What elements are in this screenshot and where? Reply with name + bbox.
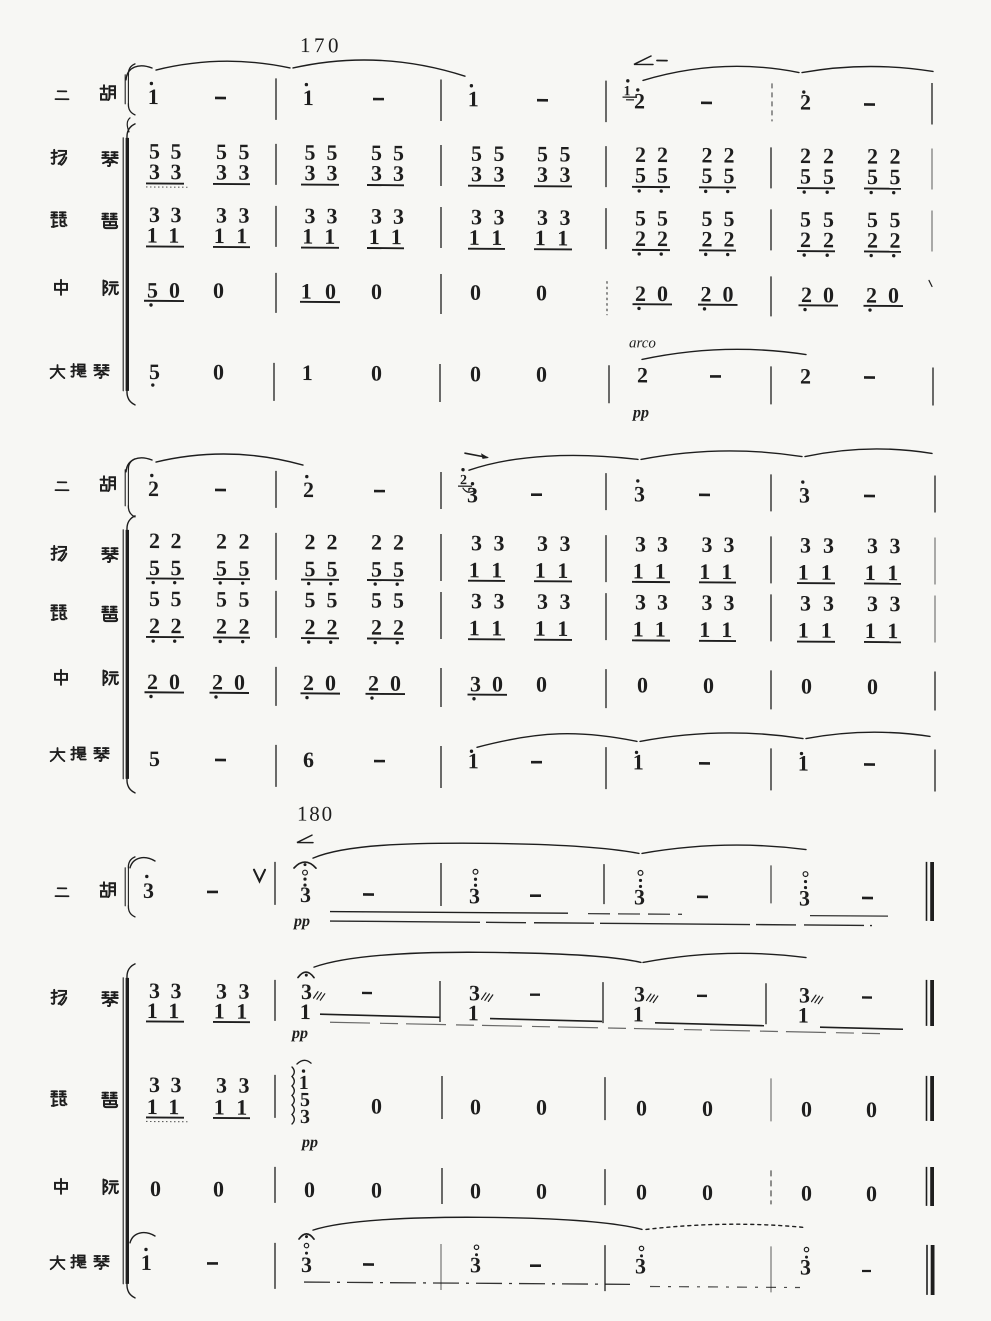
svg-text:3: 3: [467, 482, 478, 507]
svg-text:5: 5: [867, 164, 878, 189]
svg-text:3: 3: [657, 590, 668, 615]
svg-text:2: 2: [866, 282, 877, 307]
svg-text:0: 0: [536, 672, 547, 697]
svg-text:5: 5: [823, 164, 834, 189]
svg-text:1: 1: [821, 618, 832, 643]
svg-text:1: 1: [300, 999, 311, 1024]
svg-text:0: 0: [213, 1176, 224, 1201]
svg-text:0: 0: [866, 1097, 877, 1122]
svg-text:2: 2: [239, 529, 250, 554]
svg-text:1: 1: [633, 1001, 644, 1026]
svg-text:3: 3: [537, 162, 548, 187]
svg-text:1: 1: [865, 618, 876, 643]
svg-text:5: 5: [239, 587, 250, 612]
svg-text:3: 3: [635, 589, 646, 614]
svg-text:2: 2: [393, 530, 404, 555]
svg-text:0: 0: [325, 279, 336, 304]
svg-text:3: 3: [799, 886, 810, 911]
svg-text:3: 3: [560, 531, 571, 556]
svg-text:pp: pp: [300, 1134, 318, 1151]
svg-text:0: 0: [867, 674, 878, 699]
svg-text:1: 1: [303, 85, 314, 110]
svg-text:5: 5: [305, 556, 316, 581]
svg-text:1: 1: [147, 222, 158, 247]
svg-text:5: 5: [393, 588, 404, 613]
svg-text:3: 3: [149, 159, 160, 184]
svg-text:1: 1: [699, 559, 710, 584]
svg-text:0: 0: [823, 282, 834, 307]
svg-text:0: 0: [636, 1179, 647, 1204]
svg-text:3: 3: [393, 161, 404, 186]
svg-text:2: 2: [371, 615, 382, 640]
svg-text:2: 2: [171, 528, 182, 553]
svg-text:0: 0: [888, 283, 899, 308]
svg-text:5: 5: [890, 164, 901, 189]
svg-text:1: 1: [168, 1094, 179, 1119]
svg-text:1: 1: [324, 224, 335, 249]
svg-text:5: 5: [216, 555, 227, 580]
svg-text:1: 1: [468, 1000, 479, 1025]
svg-text:0: 0: [536, 280, 547, 305]
svg-text:1: 1: [302, 360, 313, 385]
svg-text:0: 0: [702, 1180, 713, 1205]
svg-text:5: 5: [149, 746, 160, 771]
svg-text:1: 1: [302, 224, 313, 249]
svg-text:2: 2: [800, 364, 811, 389]
svg-text:1: 1: [491, 615, 502, 640]
svg-text:2: 2: [801, 282, 812, 307]
svg-text:3: 3: [702, 532, 713, 557]
svg-text:3: 3: [724, 590, 735, 615]
svg-text:0: 0: [371, 361, 382, 386]
svg-text:0: 0: [636, 1095, 647, 1120]
svg-text:1: 1: [655, 559, 666, 584]
svg-text:2: 2: [148, 476, 159, 501]
svg-text:5: 5: [800, 164, 811, 189]
svg-text:3: 3: [327, 160, 338, 185]
svg-text:2: 2: [305, 529, 316, 554]
svg-text:1: 1: [214, 223, 225, 248]
svg-text:0: 0: [470, 280, 481, 305]
svg-text:0: 0: [470, 361, 481, 386]
svg-text:3: 3: [494, 530, 505, 555]
svg-text:3: 3: [239, 160, 250, 185]
svg-text:2: 2: [724, 227, 735, 252]
svg-text:2: 2: [702, 226, 713, 251]
svg-text:2: 2: [890, 228, 901, 253]
svg-text:1: 1: [557, 616, 568, 641]
svg-text:pp: pp: [292, 913, 310, 930]
svg-text:0: 0: [150, 1176, 161, 1201]
svg-text:5: 5: [216, 586, 227, 611]
svg-text:1: 1: [633, 616, 644, 641]
svg-text:2: 2: [171, 613, 182, 638]
svg-text:3: 3: [657, 532, 668, 557]
svg-text:2: 2: [800, 90, 811, 115]
svg-text:180: 180: [297, 802, 334, 826]
svg-text:0: 0: [637, 672, 648, 697]
svg-text:2: 2: [305, 614, 316, 639]
svg-text:3: 3: [494, 161, 505, 186]
svg-text:0: 0: [325, 670, 336, 695]
svg-text:2: 2: [800, 227, 811, 252]
svg-text:2: 2: [303, 670, 314, 695]
svg-text:2: 2: [823, 227, 834, 252]
svg-text:0: 0: [866, 1181, 877, 1206]
svg-text:3: 3: [635, 1253, 646, 1278]
svg-text:0: 0: [213, 278, 224, 303]
svg-text:2: 2: [216, 528, 227, 553]
svg-text:1: 1: [236, 223, 247, 248]
svg-text:1: 1: [699, 617, 710, 642]
svg-text:1: 1: [798, 751, 809, 776]
svg-text:3: 3: [494, 588, 505, 613]
svg-text:pp: pp: [631, 404, 649, 421]
svg-text:1: 1: [301, 279, 312, 304]
svg-text:1: 1: [557, 558, 568, 583]
svg-text:1: 1: [147, 1094, 158, 1119]
svg-text:5: 5: [393, 557, 404, 582]
svg-text:3: 3: [890, 591, 901, 616]
svg-text:1: 1: [798, 1003, 809, 1028]
svg-text:2: 2: [149, 613, 160, 638]
svg-text:1: 1: [721, 617, 732, 642]
svg-text:2: 2: [212, 669, 223, 694]
svg-text:3: 3: [471, 588, 482, 613]
svg-text:0: 0: [801, 1181, 812, 1206]
svg-text:3: 3: [823, 591, 834, 616]
svg-text:3: 3: [537, 531, 548, 556]
svg-text:5: 5: [149, 586, 160, 611]
svg-text:1: 1: [214, 1094, 225, 1119]
svg-text:5: 5: [171, 586, 182, 611]
svg-text:2: 2: [635, 226, 646, 251]
svg-text:3: 3: [800, 591, 811, 616]
svg-text:1: 1: [468, 86, 479, 111]
svg-text:5: 5: [149, 555, 160, 580]
svg-text:5: 5: [327, 587, 338, 612]
svg-text:3: 3: [800, 533, 811, 558]
svg-text:1: 1: [391, 224, 402, 249]
svg-text:3: 3: [537, 589, 548, 614]
svg-text:0: 0: [304, 1177, 315, 1202]
svg-text:3: 3: [301, 1252, 312, 1277]
svg-text:3: 3: [470, 1252, 481, 1277]
svg-text:1: 1: [535, 616, 546, 641]
svg-text:1: 1: [633, 749, 644, 774]
svg-text:3: 3: [800, 1255, 811, 1280]
svg-text:3: 3: [470, 671, 481, 696]
svg-text:pp: pp: [290, 1025, 308, 1042]
svg-text:2: 2: [216, 613, 227, 638]
svg-text:0: 0: [801, 674, 812, 699]
svg-text:0: 0: [169, 278, 180, 303]
svg-text:5: 5: [149, 359, 160, 384]
svg-text:0: 0: [169, 669, 180, 694]
svg-text:2: 2: [867, 228, 878, 253]
svg-text:2: 2: [657, 226, 668, 251]
svg-text:0: 0: [723, 281, 734, 306]
svg-text:3: 3: [171, 159, 182, 184]
svg-text:5: 5: [724, 163, 735, 188]
svg-text:0: 0: [703, 673, 714, 698]
svg-text:170: 170: [300, 33, 342, 57]
svg-text:2: 2: [239, 614, 250, 639]
svg-text:3: 3: [300, 882, 311, 907]
svg-text:1: 1: [535, 225, 546, 250]
svg-text:3: 3: [634, 884, 645, 909]
svg-text:3: 3: [471, 161, 482, 186]
svg-text:1: 1: [236, 1095, 247, 1120]
svg-text:1: 1: [469, 615, 480, 640]
svg-text:1: 1: [168, 223, 179, 248]
svg-text:2: 2: [368, 671, 379, 696]
svg-text:2: 2: [634, 88, 645, 113]
svg-text:2: 2: [149, 528, 160, 553]
svg-text:1: 1: [798, 560, 809, 585]
svg-text:1: 1: [887, 618, 898, 643]
svg-text:0: 0: [371, 1178, 382, 1203]
svg-text:1: 1: [468, 748, 479, 773]
svg-text:2: 2: [147, 669, 158, 694]
svg-text:3: 3: [823, 533, 834, 558]
svg-text:1: 1: [147, 998, 158, 1023]
svg-text:1: 1: [633, 558, 644, 583]
svg-text:3: 3: [469, 883, 480, 908]
svg-text:1: 1: [236, 999, 247, 1024]
svg-text:0: 0: [801, 1097, 812, 1122]
svg-text:2: 2: [327, 529, 338, 554]
svg-text:3: 3: [635, 531, 646, 556]
svg-text:arco: arco: [629, 335, 656, 351]
svg-text:3: 3: [471, 530, 482, 555]
svg-text:1: 1: [148, 84, 159, 109]
svg-text:2: 2: [327, 614, 338, 639]
svg-text:1: 1: [469, 557, 480, 582]
svg-text:3: 3: [867, 533, 878, 558]
svg-text:1: 1: [557, 225, 568, 250]
svg-text:2: 2: [303, 477, 314, 502]
svg-text:0: 0: [536, 362, 547, 387]
svg-text:3: 3: [371, 161, 382, 186]
svg-text:1: 1: [655, 617, 666, 642]
svg-text:2: 2: [635, 281, 646, 306]
svg-text:3: 3: [724, 532, 735, 557]
svg-text:6: 6: [303, 747, 314, 772]
svg-text:5: 5: [702, 163, 713, 188]
svg-text:1: 1: [721, 559, 732, 584]
svg-text:0: 0: [702, 1096, 713, 1121]
svg-text:2: 2: [701, 281, 712, 306]
svg-text:1: 1: [491, 225, 502, 250]
svg-text:1: 1: [469, 225, 480, 250]
svg-text:1: 1: [821, 560, 832, 585]
svg-text:5: 5: [327, 556, 338, 581]
svg-text:0: 0: [536, 1095, 547, 1120]
svg-text:0: 0: [536, 1179, 547, 1204]
svg-text:0: 0: [492, 671, 503, 696]
svg-text:3: 3: [143, 878, 154, 903]
svg-text:1: 1: [865, 560, 876, 585]
svg-text:3: 3: [300, 1106, 310, 1128]
svg-text:5: 5: [305, 587, 316, 612]
svg-text:5: 5: [371, 588, 382, 613]
svg-text:5: 5: [147, 277, 158, 302]
svg-text:1: 1: [887, 560, 898, 585]
svg-text:2: 2: [637, 362, 648, 387]
svg-text:3: 3: [560, 162, 571, 187]
svg-text:0: 0: [371, 1094, 382, 1119]
svg-text:5: 5: [371, 557, 382, 582]
svg-text:5: 5: [635, 162, 646, 187]
svg-text:5: 5: [657, 163, 668, 188]
svg-text:1: 1: [535, 558, 546, 583]
svg-text:3: 3: [216, 159, 227, 184]
svg-text:1: 1: [168, 998, 179, 1023]
svg-text:0: 0: [234, 670, 245, 695]
svg-text:5: 5: [171, 555, 182, 580]
svg-text:3: 3: [702, 590, 713, 615]
svg-text:0: 0: [213, 359, 224, 384]
svg-text:3: 3: [305, 160, 316, 185]
svg-text:0: 0: [371, 279, 382, 304]
svg-text:3: 3: [634, 481, 645, 506]
svg-text:3: 3: [890, 533, 901, 558]
svg-text:0: 0: [470, 1094, 481, 1119]
svg-text:0: 0: [470, 1178, 481, 1203]
svg-text:1: 1: [214, 998, 225, 1023]
svg-text:1: 1: [141, 1250, 152, 1275]
svg-text:0: 0: [390, 671, 401, 696]
svg-text:1: 1: [491, 557, 502, 582]
svg-text:0: 0: [657, 281, 668, 306]
svg-text:2: 2: [371, 530, 382, 555]
svg-text:3: 3: [867, 591, 878, 616]
svg-text:5: 5: [239, 556, 250, 581]
svg-text:2: 2: [393, 615, 404, 640]
svg-text:1: 1: [369, 224, 380, 249]
svg-text:3: 3: [799, 483, 810, 508]
svg-text:1: 1: [798, 618, 809, 643]
svg-text:3: 3: [560, 589, 571, 614]
